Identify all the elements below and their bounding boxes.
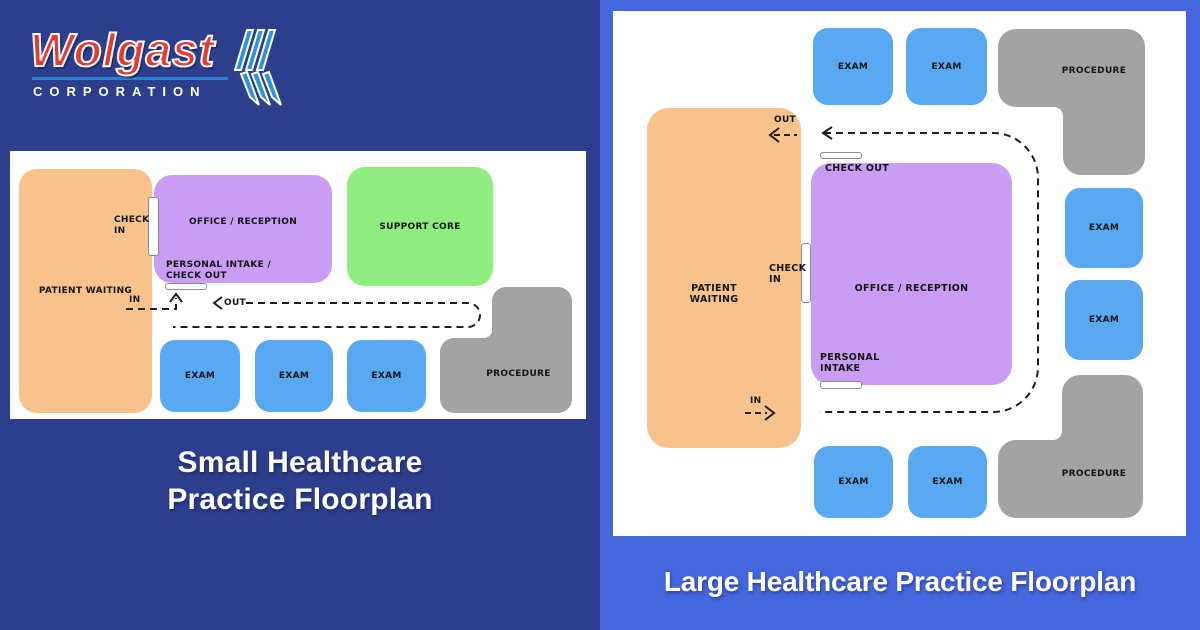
room-patient-waiting-label: PATIENT WAITING: [654, 283, 774, 305]
room-exam-top-2: EXAM: [906, 28, 987, 105]
room-label: EXAM: [932, 476, 962, 488]
room-label: EXAM: [279, 370, 309, 382]
room-patient-waiting: PATIENT WAITING: [19, 169, 152, 413]
room-procedure-shape: [440, 287, 572, 413]
personal-intake-label: PERSONAL INTAKE: [820, 352, 879, 374]
room-support-core: SUPPORT CORE: [347, 167, 493, 286]
flow-out-label: OUT: [774, 115, 796, 126]
room-label: EXAM: [838, 61, 868, 73]
room-procedure-top-label: PROCEDURE: [1043, 66, 1145, 77]
intake-door: [820, 381, 862, 389]
flow-loop-path: [173, 303, 480, 327]
check-in-label: CHECK IN: [114, 215, 149, 237]
room-procedure-bottom-label: PROCEDURE: [1043, 469, 1145, 480]
room-label: EXAM: [1089, 222, 1119, 234]
room-label: OFFICE / RECEPTION: [189, 216, 297, 228]
personal-intake-label: PERSONAL INTAKE / CHECK OUT: [166, 260, 271, 282]
room-label: EXAM: [931, 61, 961, 73]
check-out-door: [820, 152, 862, 159]
room-exam-3: EXAM: [347, 340, 426, 412]
large-plan-title: Large Healthcare Practice Floorplan: [600, 566, 1200, 598]
check-out-label: CHECK OUT: [825, 163, 889, 174]
flow-out-label: OUT: [224, 298, 246, 309]
flow-in-arrowhead: [170, 294, 182, 302]
room-label: EXAM: [371, 370, 401, 382]
brand-rule: [32, 77, 228, 80]
share-graphic: Wolgast CORPORATION PATIENT WAITING OFFI…: [0, 0, 1200, 630]
room-exam-right-2: EXAM: [1065, 280, 1143, 360]
small-plan-title: Small Healthcare Practice Floorplan: [0, 444, 600, 518]
flow-loop-arrowhead: [823, 127, 832, 139]
room-exam-bottom-2: EXAM: [908, 446, 987, 518]
room-exam-right-1: EXAM: [1065, 188, 1143, 268]
room-office-reception-label: OFFICE / RECEPTION: [811, 283, 1012, 294]
check-in-label: CHECK IN: [769, 263, 806, 285]
wolgast-logo-icon: [233, 28, 283, 108]
room-procedure-top-shape: [998, 29, 1145, 175]
room-label: PATIENT WAITING: [39, 285, 132, 297]
wolgast-logo: Wolgast CORPORATION: [30, 26, 290, 99]
check-in-door: [148, 197, 159, 256]
flow-in-label: IN: [750, 396, 761, 407]
room-procedure-bottom-shape: [998, 375, 1143, 518]
room-exam-top-1: EXAM: [813, 28, 893, 105]
room-label: EXAM: [185, 370, 215, 382]
room-exam-bottom-1: EXAM: [814, 446, 893, 518]
flow-out-arrowhead: [214, 297, 222, 309]
room-exam-1: EXAM: [160, 340, 240, 412]
large-floorplan-panel: EXAM EXAM EXAM EXAM EXAM EXAM: [613, 11, 1186, 536]
room-label: SUPPORT CORE: [379, 221, 460, 233]
room-procedure-label: PROCEDURE: [465, 369, 572, 380]
room-label: EXAM: [1089, 314, 1119, 326]
room-label: EXAM: [838, 476, 868, 488]
room-exam-2: EXAM: [255, 340, 333, 412]
intake-door: [165, 283, 207, 290]
small-floorplan-panel: PATIENT WAITING OFFICE / RECEPTION SUPPO…: [10, 151, 586, 419]
flow-in-label: IN: [129, 295, 140, 306]
